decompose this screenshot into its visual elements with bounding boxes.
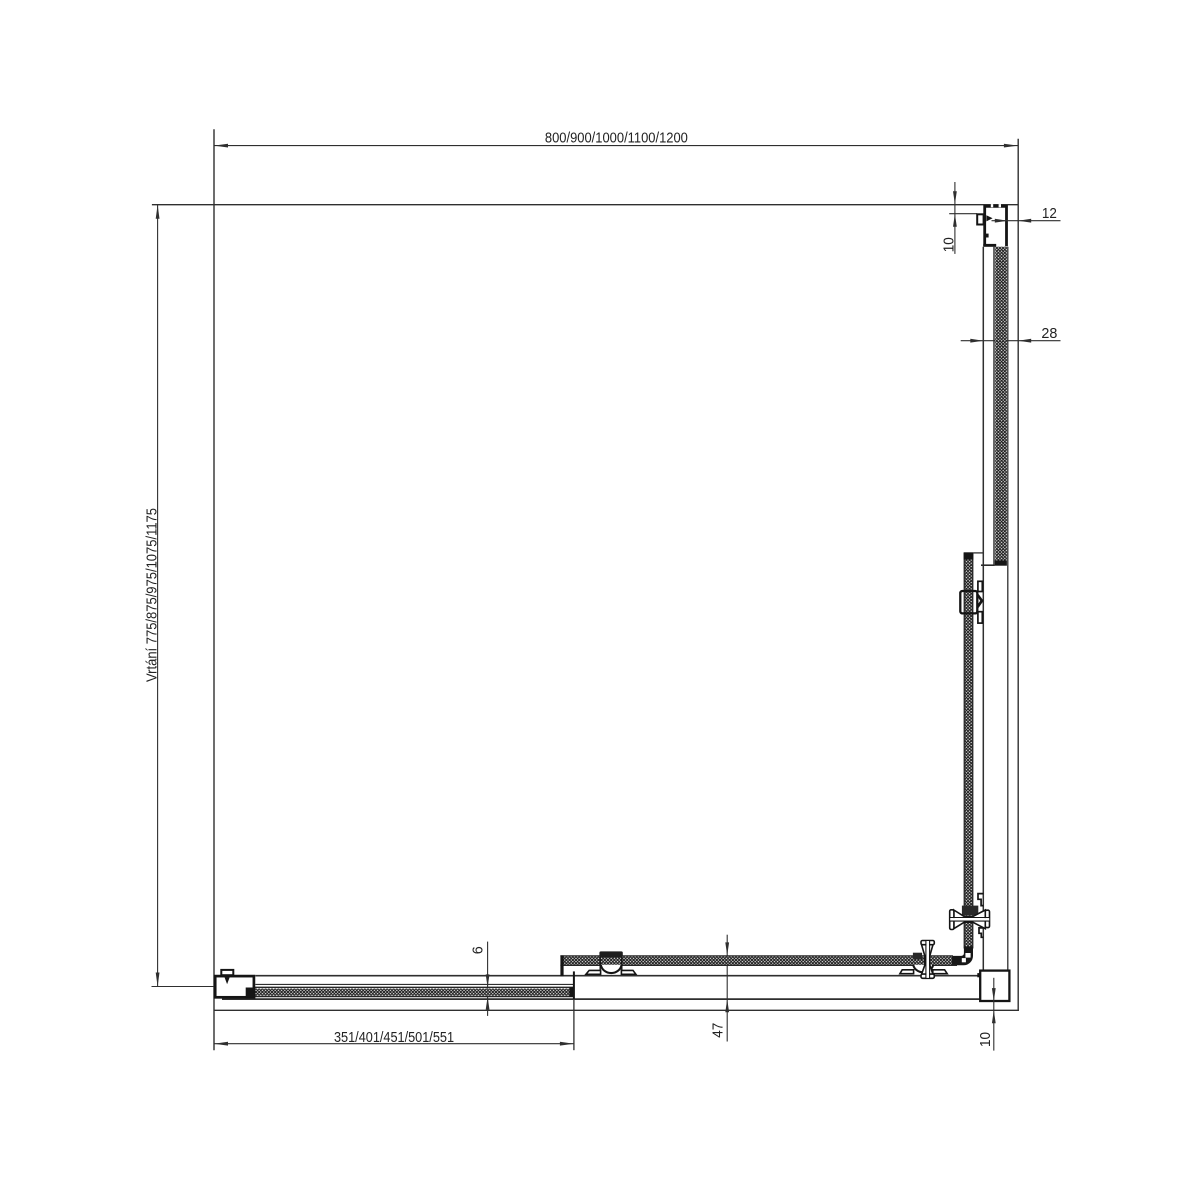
svg-text:47: 47 [709,1023,726,1038]
svg-text:800/900/1000/1100/1200: 800/900/1000/1100/1200 [545,130,688,147]
svg-text:Vrtání 775/875/975/1075/1175: Vrtání 775/875/975/1075/1175 [143,508,160,682]
svg-text:6: 6 [470,946,487,954]
svg-text:28: 28 [1041,325,1057,342]
svg-text:10: 10 [977,1032,994,1047]
svg-text:12: 12 [1042,205,1057,222]
svg-text:351/401/451/501/551: 351/401/451/501/551 [334,1029,454,1046]
svg-text:10: 10 [941,237,958,252]
